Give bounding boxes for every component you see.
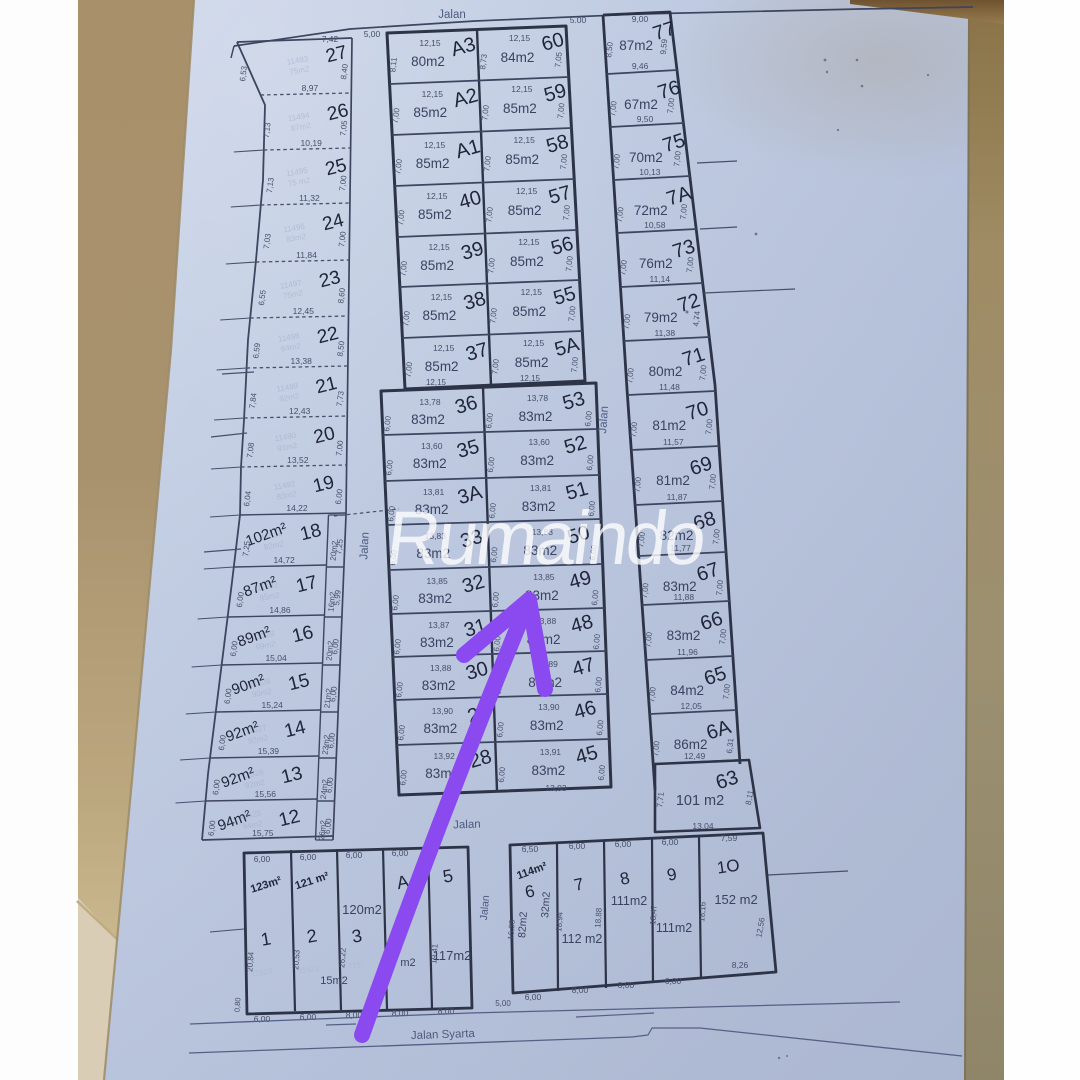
svg-text:6,00: 6,00 bbox=[569, 841, 586, 851]
svg-text:m2: m2 bbox=[400, 957, 415, 969]
svg-text:13,92: 13,92 bbox=[434, 751, 456, 761]
svg-text:6,31: 6,31 bbox=[725, 737, 736, 754]
svg-text:Rumaindo: Rumaindo bbox=[382, 495, 709, 580]
svg-text:83m2: 83m2 bbox=[411, 412, 445, 427]
svg-text:7,00: 7,00 bbox=[672, 150, 683, 167]
svg-text:12,15: 12,15 bbox=[426, 378, 447, 387]
svg-text:7,00: 7,00 bbox=[570, 356, 581, 373]
svg-text:7,00: 7,00 bbox=[401, 310, 412, 327]
svg-text:7,00: 7,00 bbox=[643, 631, 654, 648]
svg-text:11,32: 11,32 bbox=[299, 193, 320, 203]
svg-text:82m2: 82m2 bbox=[516, 911, 530, 938]
svg-text:83m2: 83m2 bbox=[530, 718, 564, 733]
svg-text:85m2: 85m2 bbox=[503, 101, 537, 116]
svg-text:14,86: 14,86 bbox=[269, 605, 291, 615]
svg-text:11,14: 11,14 bbox=[649, 274, 670, 284]
svg-text:15,24: 15,24 bbox=[262, 700, 284, 710]
svg-text:12,15: 12,15 bbox=[419, 38, 441, 48]
svg-text:7,00: 7,00 bbox=[721, 683, 732, 700]
svg-text:6,00: 6,00 bbox=[497, 766, 508, 783]
svg-text:15m2: 15m2 bbox=[320, 975, 348, 987]
svg-text:7,00: 7,00 bbox=[629, 421, 640, 438]
svg-text:8,50: 8,50 bbox=[604, 41, 615, 58]
svg-text:19,41: 19,41 bbox=[429, 943, 439, 964]
svg-text:83m2: 83m2 bbox=[420, 635, 454, 650]
svg-text:7,00: 7,00 bbox=[718, 628, 729, 645]
svg-text:15,04: 15,04 bbox=[265, 653, 287, 663]
svg-text:7,00: 7,00 bbox=[393, 158, 404, 175]
svg-text:7,00: 7,00 bbox=[618, 259, 629, 276]
svg-text:6,50: 6,50 bbox=[522, 844, 539, 854]
svg-text:15,56: 15,56 bbox=[255, 789, 277, 799]
svg-text:7,00: 7,00 bbox=[480, 104, 491, 121]
svg-text:84m2: 84m2 bbox=[501, 50, 535, 65]
svg-text:6,00: 6,00 bbox=[390, 594, 401, 611]
svg-text:6,00: 6,00 bbox=[254, 854, 271, 864]
svg-text:12,15: 12,15 bbox=[514, 135, 536, 145]
svg-text:8,11: 8,11 bbox=[388, 56, 399, 72]
svg-text:7,00: 7,00 bbox=[396, 209, 407, 226]
svg-text:6,00: 6,00 bbox=[593, 676, 604, 693]
svg-text:72m2: 72m2 bbox=[634, 203, 668, 218]
svg-text:6,00: 6,00 bbox=[595, 719, 606, 736]
svg-text:80m2: 80m2 bbox=[411, 54, 445, 69]
svg-text:12,15: 12,15 bbox=[516, 186, 538, 196]
svg-text:12,43: 12,43 bbox=[289, 406, 311, 416]
svg-text:10,58: 10,58 bbox=[644, 220, 666, 230]
svg-text:7,00: 7,00 bbox=[564, 255, 575, 272]
svg-text:0,80: 0,80 bbox=[233, 997, 243, 1012]
svg-text:85m2: 85m2 bbox=[418, 207, 452, 222]
svg-text:12,45: 12,45 bbox=[293, 306, 315, 316]
svg-text:18,47: 18,47 bbox=[648, 904, 658, 925]
svg-text:7,00: 7,00 bbox=[633, 476, 644, 493]
svg-text:6,00: 6,00 bbox=[300, 1012, 317, 1022]
svg-text:83m2: 83m2 bbox=[532, 763, 566, 778]
svg-text:6,00: 6,00 bbox=[592, 633, 603, 650]
svg-text:80m2: 80m2 bbox=[649, 364, 683, 379]
svg-text:7,00: 7,00 bbox=[490, 358, 501, 375]
svg-text:Jalan: Jalan bbox=[453, 819, 481, 832]
svg-text:12,15: 12,15 bbox=[433, 343, 455, 353]
svg-text:7,00: 7,00 bbox=[488, 307, 499, 324]
svg-text:1O: 1O bbox=[716, 856, 741, 878]
svg-text:12,15: 12,15 bbox=[422, 89, 444, 99]
svg-text:85m2: 85m2 bbox=[413, 105, 447, 120]
svg-text:6,00: 6,00 bbox=[585, 454, 596, 471]
svg-text:9,59: 9,59 bbox=[659, 38, 670, 55]
svg-text:152 m2: 152 m2 bbox=[714, 892, 757, 907]
svg-text:12,15: 12,15 bbox=[424, 140, 446, 150]
svg-text:12,49: 12,49 bbox=[684, 751, 706, 761]
svg-text:11,84: 11,84 bbox=[296, 250, 317, 260]
svg-text:83m2: 83m2 bbox=[424, 721, 458, 736]
svg-text:83m2: 83m2 bbox=[413, 456, 447, 471]
svg-text:6,00: 6,00 bbox=[615, 839, 632, 849]
svg-text:11,88: 11,88 bbox=[673, 592, 694, 602]
svg-text:11,57: 11,57 bbox=[663, 437, 684, 447]
svg-text:7,00: 7,00 bbox=[625, 367, 636, 384]
svg-text:13,38: 13,38 bbox=[291, 356, 313, 366]
svg-text:13,91: 13,91 bbox=[540, 747, 562, 757]
svg-text:81m2: 81m2 bbox=[652, 418, 686, 433]
svg-text:Jalan: Jalan bbox=[358, 532, 371, 560]
svg-text:8,26: 8,26 bbox=[732, 960, 749, 970]
svg-text:13,60: 13,60 bbox=[528, 437, 550, 447]
svg-text:7,00: 7,00 bbox=[711, 528, 722, 545]
svg-text:6,00: 6,00 bbox=[525, 992, 542, 1002]
svg-text:6,00: 6,00 bbox=[382, 415, 393, 432]
svg-text:Jalan: Jalan bbox=[597, 406, 611, 434]
svg-text:7,00: 7,00 bbox=[666, 97, 677, 114]
svg-text:6,00: 6,00 bbox=[665, 976, 682, 986]
svg-text:5,00: 5,00 bbox=[495, 999, 511, 1008]
svg-text:15,39: 15,39 bbox=[258, 746, 280, 756]
svg-text:6,00: 6,00 bbox=[300, 852, 317, 862]
svg-text:26,22: 26,22 bbox=[337, 947, 347, 968]
svg-text:6,00: 6,00 bbox=[490, 591, 501, 608]
svg-text:Jalan: Jalan bbox=[438, 9, 466, 21]
svg-text:18,94: 18,94 bbox=[554, 911, 564, 932]
svg-text:7,00: 7,00 bbox=[708, 473, 719, 490]
svg-text:7,00: 7,00 bbox=[685, 256, 696, 273]
svg-text:12,15: 12,15 bbox=[509, 33, 531, 43]
svg-text:6,00: 6,00 bbox=[396, 724, 407, 741]
svg-text:12,15: 12,15 bbox=[520, 374, 541, 383]
svg-text:11,38: 11,38 bbox=[654, 328, 675, 338]
svg-text:12,15: 12,15 bbox=[431, 292, 453, 302]
svg-text:12,15: 12,15 bbox=[426, 191, 448, 201]
svg-text:112 m2: 112 m2 bbox=[562, 932, 603, 946]
svg-text:7,00: 7,00 bbox=[482, 155, 493, 172]
svg-text:7,00: 7,00 bbox=[391, 107, 402, 124]
svg-text:101 m2: 101 m2 bbox=[676, 793, 724, 809]
svg-text:13,90: 13,90 bbox=[432, 706, 454, 716]
svg-text:14,22: 14,22 bbox=[286, 503, 308, 513]
svg-text:9,50: 9,50 bbox=[637, 114, 654, 124]
svg-text:83m2: 83m2 bbox=[418, 591, 452, 606]
svg-text:7,00: 7,00 bbox=[679, 203, 690, 220]
svg-text:6,00: 6,00 bbox=[590, 589, 601, 606]
svg-text:7,00: 7,00 bbox=[486, 257, 497, 274]
svg-text:7,00: 7,00 bbox=[647, 686, 658, 703]
svg-text:12,15: 12,15 bbox=[521, 287, 543, 297]
svg-text:85m2: 85m2 bbox=[508, 203, 542, 218]
svg-text:84m2: 84m2 bbox=[670, 683, 704, 698]
svg-text:6,00: 6,00 bbox=[583, 410, 594, 427]
svg-text:6,00: 6,00 bbox=[346, 850, 363, 860]
svg-text:13,78: 13,78 bbox=[527, 393, 549, 403]
svg-text:9,46: 9,46 bbox=[632, 61, 649, 71]
svg-text:7,59: 7,59 bbox=[721, 833, 738, 843]
svg-text:5,00: 5,00 bbox=[364, 29, 381, 39]
svg-text:87m2: 87m2 bbox=[619, 38, 653, 53]
svg-text:7,00: 7,00 bbox=[651, 740, 662, 757]
svg-text:6,00: 6,00 bbox=[495, 721, 506, 738]
svg-text:7,05: 7,05 bbox=[553, 51, 564, 68]
svg-text:7,00: 7,00 bbox=[567, 305, 578, 322]
svg-text:7,00: 7,00 bbox=[559, 153, 570, 170]
svg-text:7,00: 7,00 bbox=[404, 361, 415, 378]
svg-text:81m2: 81m2 bbox=[656, 473, 690, 488]
svg-text:8,73: 8,73 bbox=[478, 53, 489, 70]
svg-text:83m2: 83m2 bbox=[519, 409, 553, 424]
svg-text:4,74: 4,74 bbox=[691, 310, 702, 327]
svg-text:Jalan Syarta: Jalan Syarta bbox=[411, 1028, 476, 1042]
svg-text:6,00: 6,00 bbox=[398, 769, 409, 786]
svg-text:8,97: 8,97 bbox=[302, 83, 319, 93]
svg-text:7,00: 7,00 bbox=[704, 418, 715, 435]
svg-text:15,75: 15,75 bbox=[252, 828, 274, 838]
svg-text:13,81: 13,81 bbox=[530, 483, 552, 493]
svg-text:111m2: 111m2 bbox=[611, 894, 647, 908]
svg-text:18,16: 18,16 bbox=[697, 901, 707, 922]
svg-text:6,00: 6,00 bbox=[597, 764, 608, 781]
svg-text:7,00: 7,00 bbox=[640, 582, 651, 599]
svg-text:13,04: 13,04 bbox=[692, 821, 714, 831]
svg-text:11,96: 11,96 bbox=[677, 647, 698, 657]
svg-text:10,13: 10,13 bbox=[639, 167, 661, 177]
svg-text:7,00: 7,00 bbox=[611, 153, 622, 170]
svg-text:12,15: 12,15 bbox=[511, 84, 533, 94]
svg-text:16,38: 16,38 bbox=[506, 919, 516, 940]
svg-text:13,88: 13,88 bbox=[430, 663, 452, 673]
svg-text:13,90: 13,90 bbox=[538, 702, 560, 712]
svg-text:85m2: 85m2 bbox=[420, 258, 454, 273]
svg-text:14,72: 14,72 bbox=[273, 555, 295, 565]
svg-text:Jalan: Jalan bbox=[478, 895, 492, 921]
svg-text:79m2: 79m2 bbox=[644, 310, 678, 325]
svg-text:85m2: 85m2 bbox=[515, 355, 549, 370]
svg-text:6,00: 6,00 bbox=[254, 1014, 271, 1024]
svg-text:12,15: 12,15 bbox=[428, 242, 450, 252]
svg-text:13,87: 13,87 bbox=[428, 620, 450, 630]
svg-text:6,00: 6,00 bbox=[392, 638, 403, 655]
svg-text:11,48: 11,48 bbox=[659, 382, 680, 392]
svg-text:8,00: 8,00 bbox=[618, 980, 635, 990]
svg-text:76m2: 76m2 bbox=[639, 256, 673, 271]
svg-text:12,15: 12,15 bbox=[518, 237, 540, 247]
svg-text:6,00: 6,00 bbox=[662, 837, 679, 847]
svg-text:8,00: 8,00 bbox=[572, 985, 589, 995]
svg-text:67m2: 67m2 bbox=[624, 97, 658, 112]
svg-text:6,00: 6,00 bbox=[384, 459, 395, 476]
svg-text:7,42: 7,42 bbox=[322, 34, 339, 44]
svg-text:85m2: 85m2 bbox=[423, 308, 457, 323]
svg-text:13,93: 13,93 bbox=[545, 783, 567, 793]
svg-text:7,71: 7,71 bbox=[655, 791, 666, 808]
svg-text:7,00: 7,00 bbox=[399, 260, 410, 277]
svg-text:5.00: 5.00 bbox=[570, 15, 587, 25]
svg-text:9,00: 9,00 bbox=[632, 14, 649, 24]
svg-text:18,88: 18,88 bbox=[593, 907, 603, 928]
svg-text:7,00: 7,00 bbox=[615, 206, 626, 223]
svg-text:85m2: 85m2 bbox=[425, 359, 459, 374]
svg-text:7,00: 7,00 bbox=[715, 579, 726, 596]
svg-text:10,19: 10,19 bbox=[301, 138, 323, 148]
svg-text:111m2: 111m2 bbox=[656, 921, 692, 935]
svg-text:7,00: 7,00 bbox=[561, 204, 572, 221]
svg-text:83m2: 83m2 bbox=[422, 678, 456, 693]
svg-text:7,00: 7,00 bbox=[556, 102, 567, 119]
svg-text:12,15: 12,15 bbox=[523, 338, 545, 348]
svg-text:6,00: 6,00 bbox=[394, 681, 405, 698]
svg-text:13,60: 13,60 bbox=[421, 441, 443, 451]
svg-text:13,78: 13,78 bbox=[419, 397, 441, 407]
svg-text:85m2: 85m2 bbox=[505, 152, 539, 167]
svg-text:83m2: 83m2 bbox=[520, 453, 554, 468]
svg-text:83m2: 83m2 bbox=[667, 628, 701, 643]
svg-text:85m2: 85m2 bbox=[512, 304, 546, 319]
svg-text:7,00: 7,00 bbox=[698, 364, 709, 381]
svg-text:7,00: 7,00 bbox=[608, 100, 619, 117]
svg-text:7,00: 7,00 bbox=[484, 206, 495, 223]
svg-text:6,00: 6,00 bbox=[392, 848, 409, 858]
svg-text:12,05: 12,05 bbox=[681, 701, 703, 711]
svg-text:7,00: 7,00 bbox=[622, 313, 633, 330]
svg-text:32m2: 32m2 bbox=[539, 891, 553, 918]
svg-text:85m2: 85m2 bbox=[510, 254, 544, 269]
svg-text:85m2: 85m2 bbox=[416, 156, 450, 171]
svg-text:6,00: 6,00 bbox=[486, 456, 497, 473]
svg-text:13,52: 13,52 bbox=[287, 455, 309, 465]
svg-text:70m2: 70m2 bbox=[629, 150, 663, 165]
svg-text:86m2: 86m2 bbox=[674, 737, 708, 752]
svg-text:115: 115 bbox=[348, 960, 362, 971]
svg-text:120m2: 120m2 bbox=[342, 902, 382, 917]
svg-text:6,00: 6,00 bbox=[484, 412, 495, 429]
